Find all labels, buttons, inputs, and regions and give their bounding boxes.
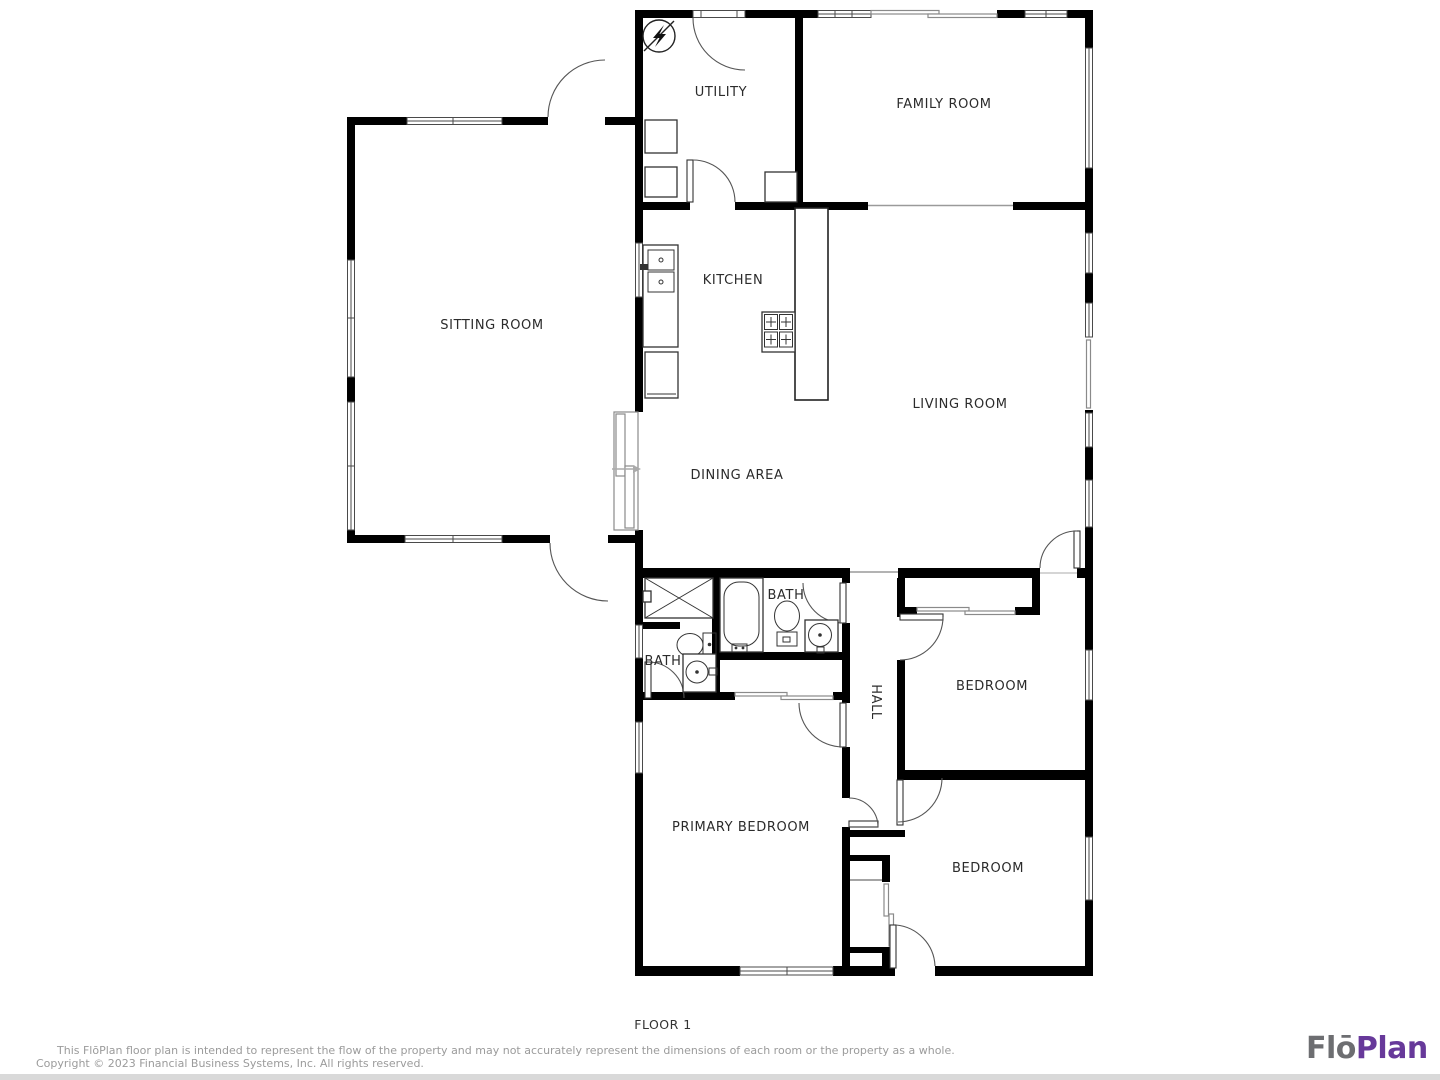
toilet-fixture (775, 601, 800, 646)
label-bath-ensuite: BATH (645, 654, 682, 669)
kitchen-sink-fixture (640, 245, 678, 347)
sitting-room-top-door-arc (548, 60, 605, 117)
window (1086, 837, 1093, 900)
window (740, 967, 833, 975)
entry-doorway (693, 11, 745, 18)
window (636, 722, 643, 773)
window (348, 260, 355, 377)
window (1086, 303, 1093, 337)
sink-fixture (683, 654, 717, 692)
toilet-fixture (677, 633, 716, 657)
label-dining-area: DINING AREA (691, 468, 784, 483)
window (1086, 480, 1093, 527)
bath-main-door (803, 583, 846, 623)
primary-bedroom-door (799, 703, 846, 747)
hall-closet-door (849, 798, 878, 827)
family-room-slider (871, 11, 997, 18)
shower-fixture (643, 578, 713, 618)
label-primary-bedroom: PRIMARY BEDROOM (672, 820, 810, 835)
bedroom1-door (900, 614, 943, 660)
window (1086, 413, 1093, 447)
floor-label: FLOOR 1 (634, 1017, 692, 1032)
sitting-room-bottom-door-arc (550, 543, 608, 601)
dryer-fixture (645, 167, 677, 197)
sink-fixture (805, 620, 838, 653)
sitting-room-slider (612, 412, 641, 530)
water-heater-fixture (765, 172, 797, 202)
floorplan-svg: UTILITY FAMILY ROOM SITTING ROOM KITCHEN… (0, 0, 1440, 1080)
living-room-door (1040, 531, 1080, 568)
floplan-logo-flo: Flō (1306, 1031, 1356, 1066)
primary-closet-slider (735, 693, 833, 700)
fixtures (640, 20, 838, 692)
label-kitchen: KITCHEN (703, 273, 764, 288)
window (348, 402, 355, 530)
utility-kitchen-door (687, 160, 735, 202)
fixed-glass-panel (1087, 340, 1091, 408)
floplan-logo-plan: Plan (1356, 1031, 1428, 1066)
bottom-edge-strip (0, 1074, 1440, 1080)
window (818, 11, 871, 18)
floorplan-page: UTILITY FAMILY ROOM SITTING ROOM KITCHEN… (0, 0, 1440, 1080)
utility-entry-door-arc (693, 18, 745, 70)
openings (850, 206, 1077, 574)
back-door (890, 925, 935, 968)
room-labels: UTILITY FAMILY ROOM SITTING ROOM KITCHEN… (440, 85, 1028, 876)
label-sitting-room: SITTING ROOM (440, 318, 543, 333)
window (407, 118, 502, 125)
window (1086, 48, 1093, 168)
disclaimer-text: This FlōPlan floor plan is intended to r… (57, 1044, 955, 1057)
refrigerator-fixture (645, 352, 678, 398)
copyright-text: Copyright © 2023 Financial Business Syst… (36, 1057, 424, 1070)
label-living-room: LIVING ROOM (912, 397, 1007, 412)
kitchen-island (795, 208, 828, 400)
washer-fixture (645, 120, 677, 153)
window (405, 536, 502, 543)
window (1086, 650, 1093, 700)
label-bath-main: BATH (768, 588, 805, 603)
bathtub-fixture (720, 578, 763, 652)
window (636, 625, 643, 658)
label-bedroom-1: BEDROOM (956, 679, 1028, 694)
label-bedroom-2: BEDROOM (952, 861, 1024, 876)
north-compass-icon (643, 20, 675, 52)
window (1086, 233, 1093, 273)
bedroom2-door (897, 778, 942, 825)
stove-fixture (762, 312, 795, 352)
label-family-room: FAMILY ROOM (896, 97, 991, 112)
window (1025, 11, 1067, 18)
floplan-logo: FlōPlan (1306, 1031, 1428, 1066)
label-utility: UTILITY (695, 85, 747, 100)
label-hall: HALL (868, 684, 883, 720)
